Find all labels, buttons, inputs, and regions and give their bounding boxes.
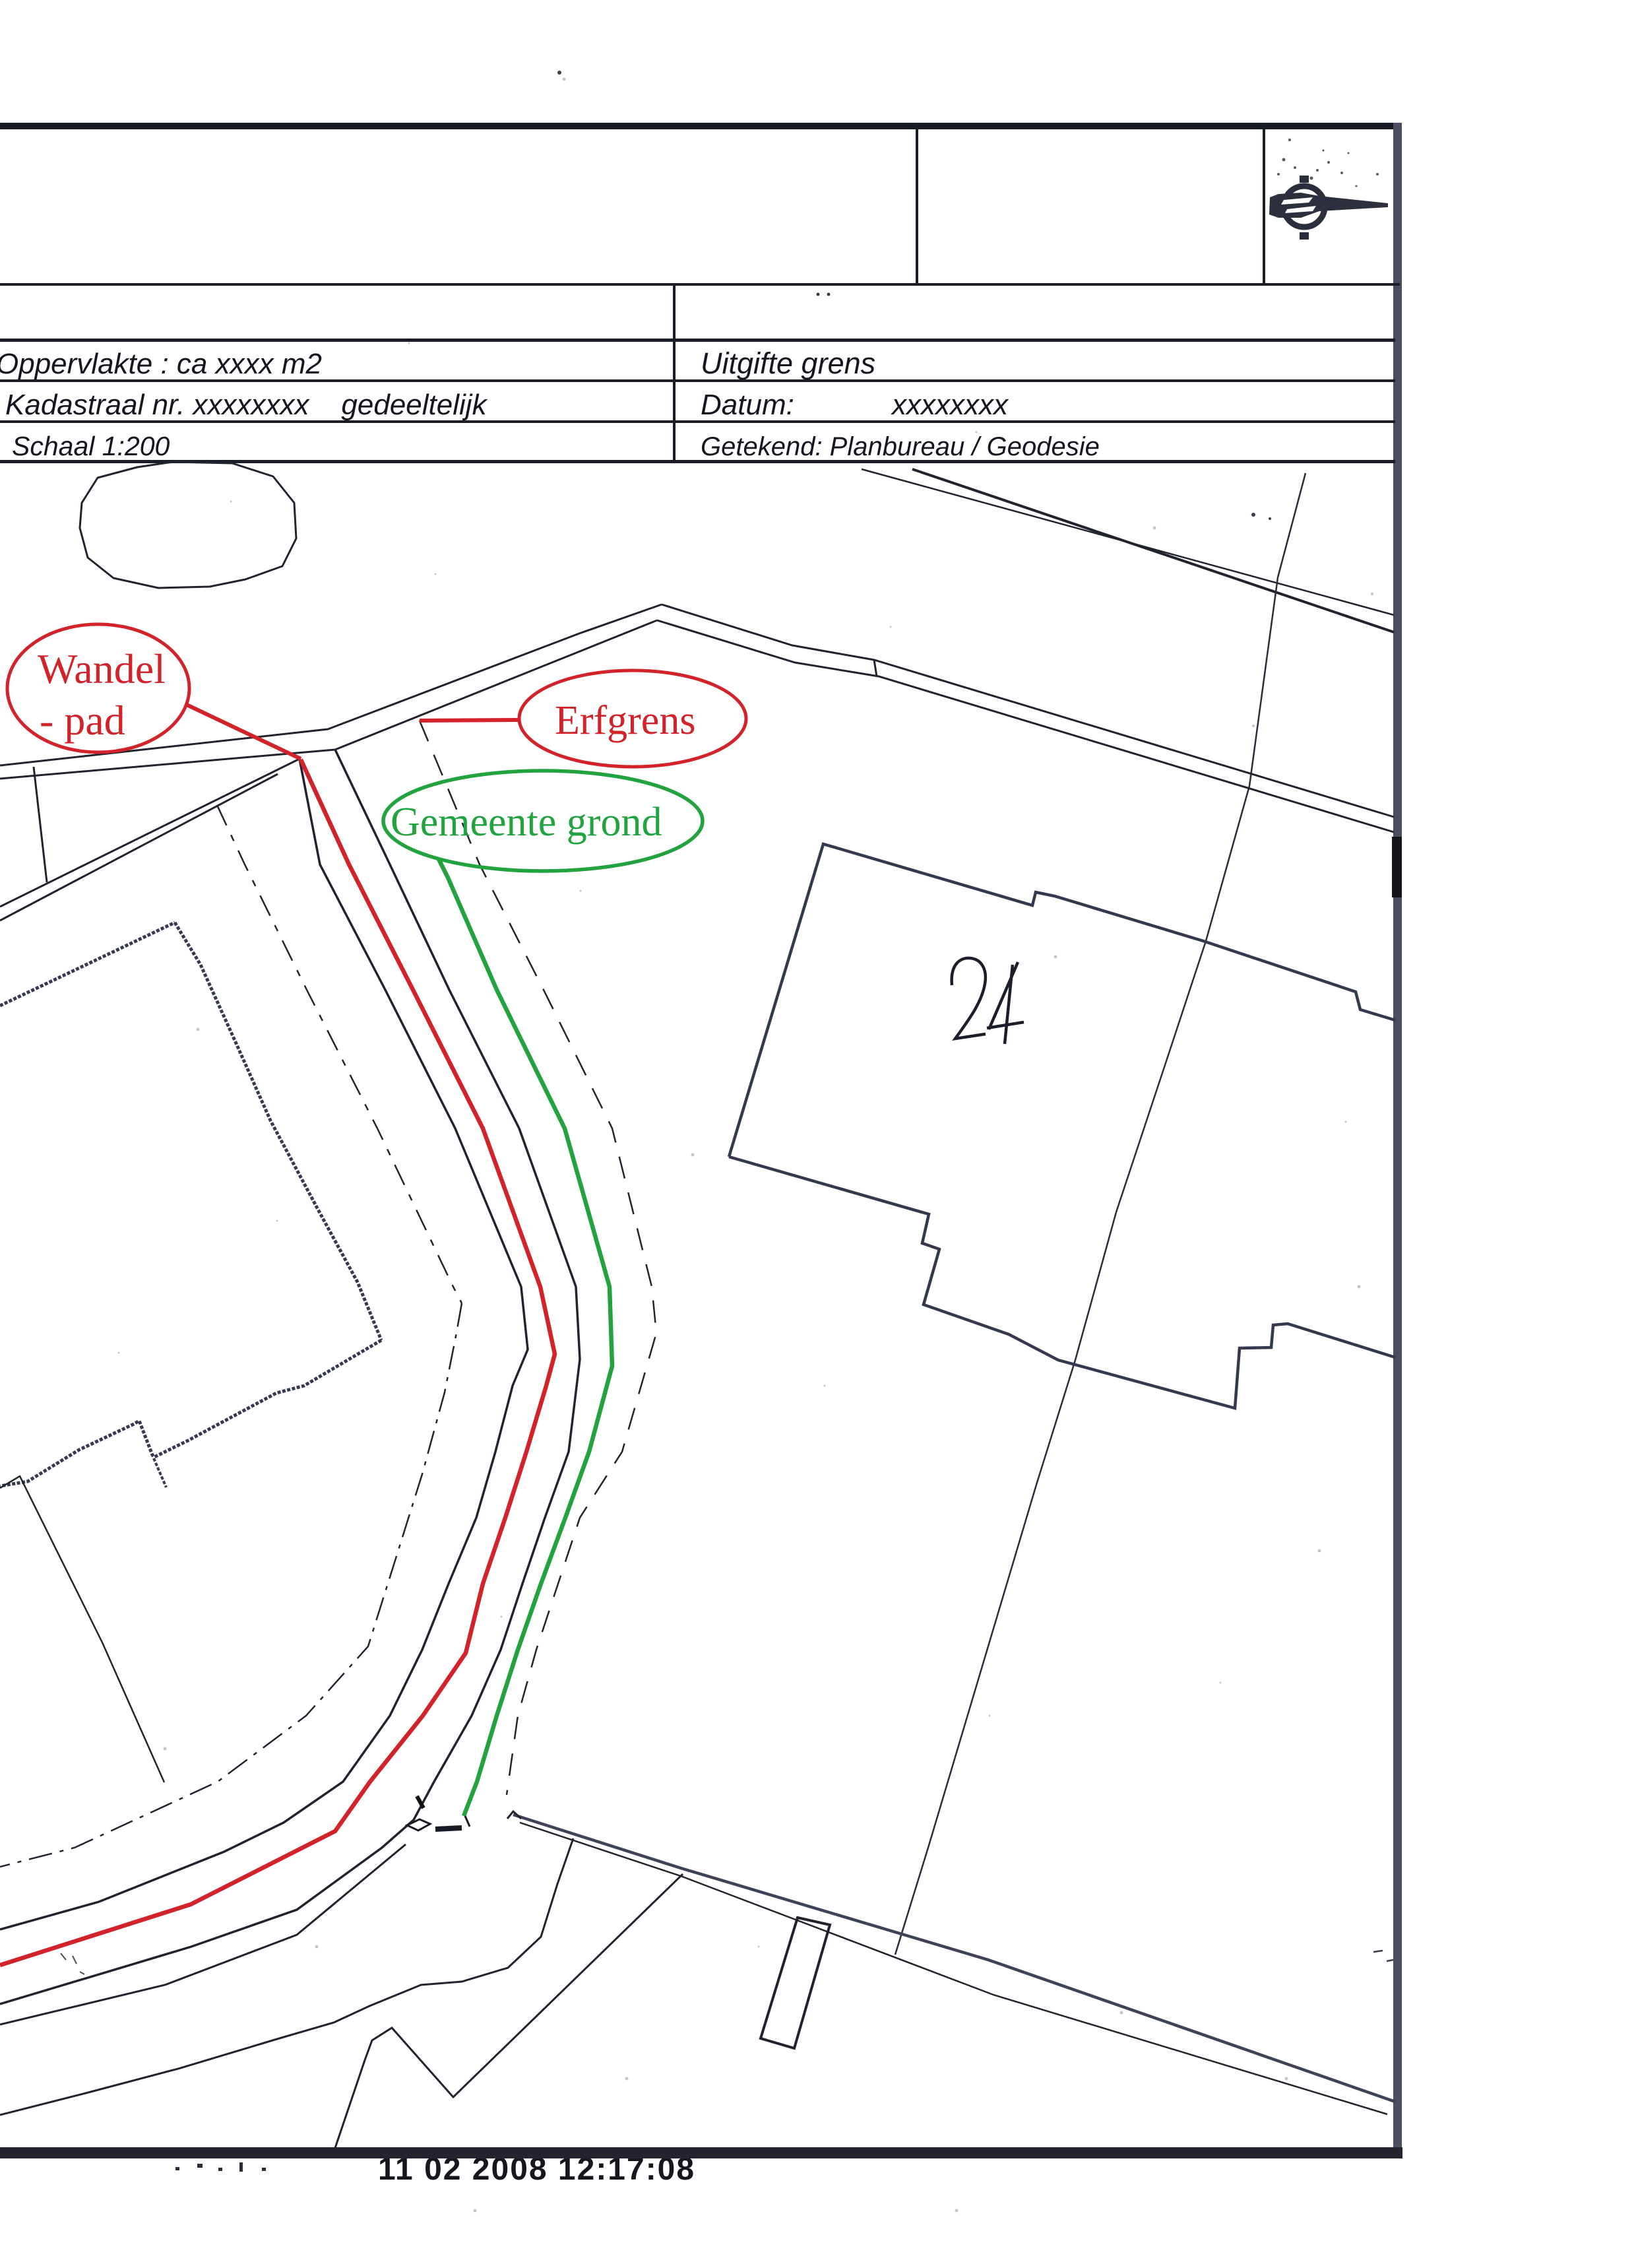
svg-text:Datum:: Datum: xyxy=(701,389,794,421)
svg-text:Oppervlakte : ca xxxx m2: Oppervlakte : ca xxxx m2 xyxy=(0,348,322,380)
svg-text:Wandel: Wandel xyxy=(38,645,166,692)
svg-text:Kadastraal nr. xxxxxxxx ged: Kadastraal nr. xxxxxxxx gedeeltelijk xyxy=(5,389,488,421)
svg-text:- pad: - pad xyxy=(40,697,125,744)
svg-text:Schaal 1:200: Schaal 1:200 xyxy=(12,431,170,461)
svg-text:Gemeente grond: Gemeente grond xyxy=(391,800,662,845)
svg-text:xxxxxxxx: xxxxxxxx xyxy=(891,389,1009,421)
svg-text:Erfgrens: Erfgrens xyxy=(555,698,695,743)
svg-text:Getekend: Planbureau / Geodes: Getekend: Planbureau / Geodesie xyxy=(701,432,1100,461)
svg-text:Uitgifte grens: Uitgifte grens xyxy=(701,346,875,380)
